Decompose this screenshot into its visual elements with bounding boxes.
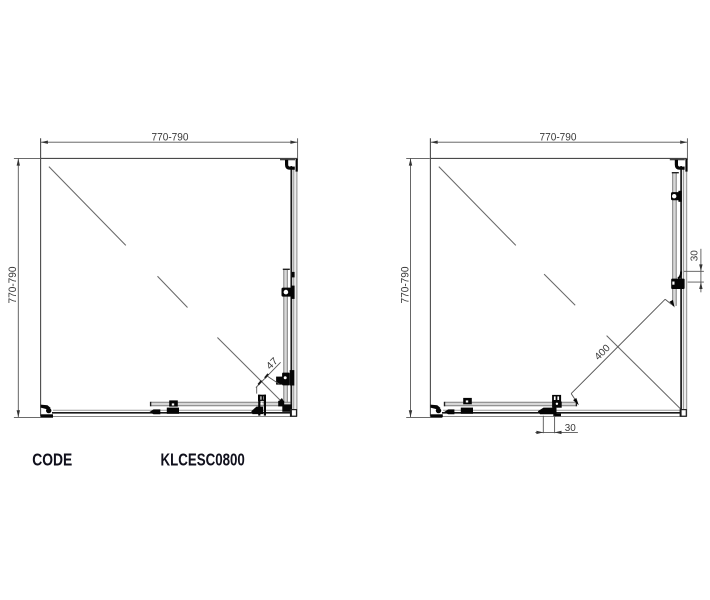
svg-text:770-790: 770-790 <box>7 267 19 304</box>
svg-text:770-790: 770-790 <box>399 267 411 304</box>
svg-text:30: 30 <box>565 423 576 434</box>
svg-text:770-790: 770-790 <box>152 132 189 144</box>
svg-text:770-790: 770-790 <box>540 132 577 144</box>
svg-text:30: 30 <box>690 250 701 261</box>
svg-text:CODE: CODE <box>32 450 72 470</box>
svg-text:KLCESC0800: KLCESC0800 <box>161 449 245 469</box>
